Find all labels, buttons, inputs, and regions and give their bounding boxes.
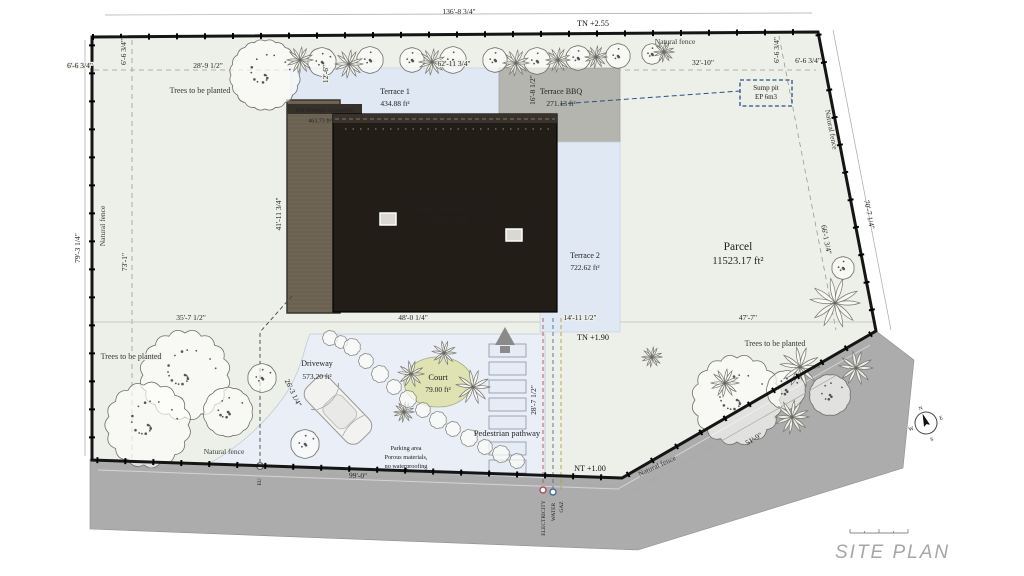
dim-32-10: 32'-10" [692,58,714,67]
tree-icon [566,46,590,71]
tree-icon [291,430,319,459]
dim-62-11: 62'-11 3/4" [437,59,470,68]
pathway-label: Pedestrian pathway [474,428,541,438]
parking-note-1: Parking area [390,445,421,452]
terrace-bbq-name: Terrace BBQ [540,87,583,96]
tree-icon [524,48,550,75]
tree-icon [832,257,854,280]
parking-note-2: Porous materials, [385,454,428,461]
fence-left-label: Natural fence [98,205,107,246]
terrace1-area: 434.88 ft² [380,99,410,108]
pathway-step [489,362,526,375]
drawing-title: SITE PLAN [835,542,950,563]
tree-icon [810,375,851,416]
trees-left-bottom-label: Trees to be planted [101,352,162,361]
dim-99-0: 99'-0" [349,471,367,481]
dim-6-6-tr-h: 6'-6 3/4" [795,56,821,65]
roof-deck-area: 463.73 ft² [308,118,332,125]
bush-icon [415,403,430,418]
compass-n: N [918,405,924,412]
dim-35-7: 35'-7 1/2" [176,313,206,322]
court-area: 79.00 ft² [425,385,451,394]
terrace2-area: 722.62 ft² [570,263,600,272]
dim-right-overall: 70'-7 1/4" [862,199,876,230]
bush-icon [445,422,460,437]
dim-48-0: 48'-0 1/4" [398,313,428,322]
level-mid: TN +1.90 [577,333,609,342]
dim-12-6: 12'-6" [321,65,330,83]
tree-icon [483,48,507,73]
tree-icon [248,364,276,393]
tree-icon [204,387,253,437]
dim-28-9: 28'-9 1/2" [193,61,223,70]
sump-pit-line2: EP 6m3 [755,93,778,101]
roof-label: Singe slope roof10% [412,203,488,213]
bush-icon [509,454,524,469]
site-plan-page: 136'-8 3/4" TN +2.55 Natural fence 28'-9… [0,0,1024,576]
dim-pathway-side: 28'-7 1/2" [529,385,538,415]
site-plan-drawing: 136'-8 3/4" TN +2.55 Natural fence 28'-9… [0,0,1024,576]
roof-area: 3230.13 ft² [431,215,469,225]
bush-icon [399,390,416,407]
terrace-bbq-area: 271.13 ft² [546,99,576,108]
water-label: WATER [551,503,557,522]
compass-w: W [908,425,916,433]
dim-16-8: 16'-8 1/2" [528,75,537,105]
tree-icon [400,48,424,73]
driveway-name: Driveway [301,359,333,368]
dim-overall-top: 136'-8 3/4" [442,7,475,16]
dim-left-setback: 73'-1" [120,253,129,271]
sump-pit-line1: Sump pit [753,84,779,92]
water-point-icon [550,489,556,495]
dim-47-7: 47'-7" [739,313,757,322]
bush-icon [429,411,446,428]
parcel-name: Parcel [724,241,753,253]
dim-left-overall: 79'-3 1/4" [73,233,82,263]
compass-rose: N E S W [902,400,950,449]
terrace1-name: Terrace 1 [380,87,410,96]
dim-6-6-tl-v: 6'-6 3/4" [119,39,128,65]
dim-14-11: 14'-11 1/2" [563,313,596,322]
roof-top-band [333,114,557,123]
tree-icon [606,44,630,69]
level-bottom: NT +1.00 [574,464,606,473]
trees-right-label: Trees to be planted [745,339,806,348]
dim-deck-side: 41'-11 3/4" [274,197,283,230]
roof-skylight-1 [380,213,396,225]
dim-roof-side: 38'-7 1/2" [527,208,536,238]
building-roof [333,114,557,312]
bush-icon [386,380,401,395]
bush-icon [358,354,373,369]
dim-6-6-tl-h: 6'-6 3/4" [67,61,93,70]
parcel-area: 11523.17 ft² [712,256,763,267]
tree-icon [230,40,300,110]
dim-6-6-tr-v: 6'-6 3/4" [772,37,781,63]
terrace2-name: Terrace 2 [570,251,600,260]
bush-icon [477,440,492,455]
fence-bottom-label: Natural fence [204,447,245,456]
bush-icon [492,445,509,462]
roof-deck-name: Toit Terrasse Accessible [295,108,353,114]
fence-top-label: Natural fence [655,37,696,46]
level-top: TN +2.55 [577,19,609,28]
pathway-step [489,398,526,411]
parking-note-3: no waterproofing [385,463,428,470]
scale-bar [850,529,908,533]
sewer-label: EU [257,478,263,485]
court-name: Court [428,372,448,382]
pathway-step [489,380,526,393]
bush-icon [371,365,388,382]
electricity-point-icon [540,487,546,493]
compass-s: S [930,437,935,444]
compass-e: E [939,415,945,422]
gaz-label: GAZ [559,501,565,513]
trees-left-top-label: Trees to be planted [170,86,231,95]
bush-icon [343,338,360,355]
roof-skylight-2 [506,229,522,241]
electricity-label: ELECTRICITY [541,500,547,535]
driveway-area: 573.20 ft² [302,372,332,381]
